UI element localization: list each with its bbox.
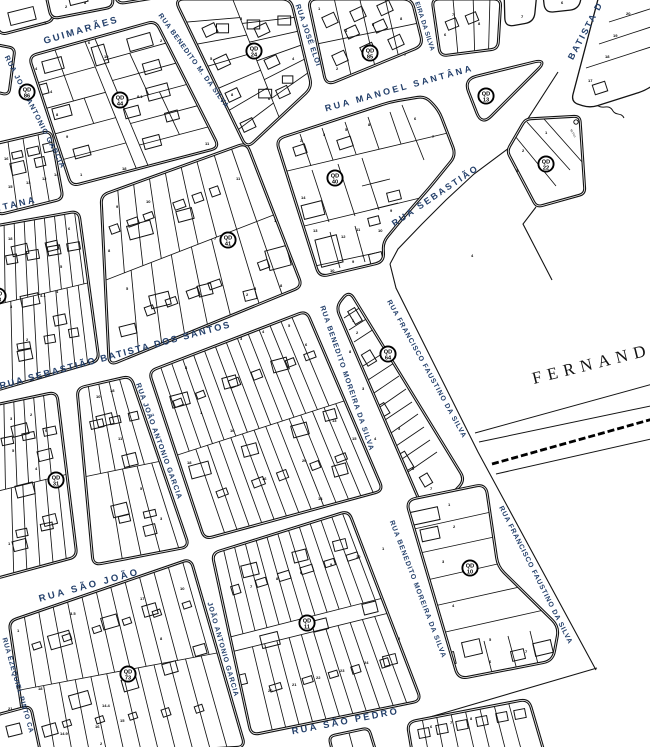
- svg-text:16: 16: [4, 156, 9, 161]
- svg-text:12: 12: [42, 176, 47, 181]
- svg-text:85: 85: [367, 54, 373, 60]
- svg-text:24: 24: [251, 52, 258, 58]
- svg-text:21: 21: [8, 706, 13, 711]
- svg-text:14.4: 14.4: [102, 703, 111, 708]
- svg-text:13: 13: [483, 97, 489, 103]
- svg-text:16: 16: [262, 476, 267, 481]
- svg-text:16: 16: [95, 724, 100, 729]
- svg-text:10: 10: [146, 199, 151, 204]
- svg-text:15: 15: [8, 184, 13, 189]
- svg-text:20: 20: [626, 11, 631, 16]
- svg-text:14.9: 14.9: [60, 731, 69, 736]
- svg-text:8.1: 8.1: [137, 94, 143, 99]
- svg-text:13: 13: [313, 228, 318, 233]
- svg-text:44: 44: [117, 101, 124, 107]
- svg-text:18: 18: [605, 54, 610, 59]
- svg-text:13: 13: [332, 418, 337, 423]
- svg-text:14: 14: [318, 496, 323, 501]
- svg-text:20: 20: [268, 688, 273, 693]
- svg-text:18: 18: [122, 166, 127, 171]
- svg-text:40: 40: [332, 179, 338, 185]
- svg-text:21: 21: [292, 682, 297, 687]
- svg-text:10: 10: [467, 569, 473, 575]
- svg-text:3.5: 3.5: [70, 611, 76, 616]
- svg-text:10: 10: [378, 228, 383, 233]
- svg-text:10: 10: [180, 586, 185, 591]
- svg-text:19: 19: [613, 33, 618, 38]
- svg-text:23: 23: [340, 668, 345, 673]
- svg-text:14: 14: [54, 172, 59, 177]
- svg-text:22: 22: [316, 675, 321, 680]
- svg-text:14: 14: [301, 195, 306, 200]
- svg-text:17: 17: [588, 78, 593, 83]
- svg-text:38: 38: [0, 297, 1, 303]
- svg-text:17: 17: [140, 596, 145, 601]
- svg-text:12: 12: [341, 234, 346, 239]
- svg-text:24: 24: [364, 660, 369, 665]
- svg-text:18: 18: [187, 460, 192, 465]
- svg-text:4.1: 4.1: [40, 293, 46, 298]
- svg-text:15: 15: [120, 718, 125, 723]
- svg-text:13: 13: [26, 180, 31, 185]
- svg-text:10: 10: [330, 268, 335, 273]
- svg-text:22: 22: [543, 165, 549, 171]
- svg-text:10: 10: [96, 394, 101, 399]
- svg-text:11: 11: [304, 624, 310, 630]
- svg-text:31: 31: [53, 481, 59, 487]
- svg-text:20: 20: [302, 458, 307, 463]
- svg-text:73: 73: [125, 675, 131, 681]
- svg-text:18: 18: [8, 236, 13, 241]
- svg-text:10: 10: [104, 54, 109, 59]
- svg-text:10: 10: [230, 428, 235, 433]
- svg-text:18: 18: [110, 388, 115, 393]
- svg-text:86: 86: [24, 93, 30, 99]
- svg-text:41: 41: [225, 241, 231, 247]
- svg-text:18: 18: [38, 686, 43, 691]
- svg-text:10: 10: [356, 554, 361, 559]
- svg-text:15: 15: [352, 436, 357, 441]
- svg-text:64: 64: [385, 355, 392, 361]
